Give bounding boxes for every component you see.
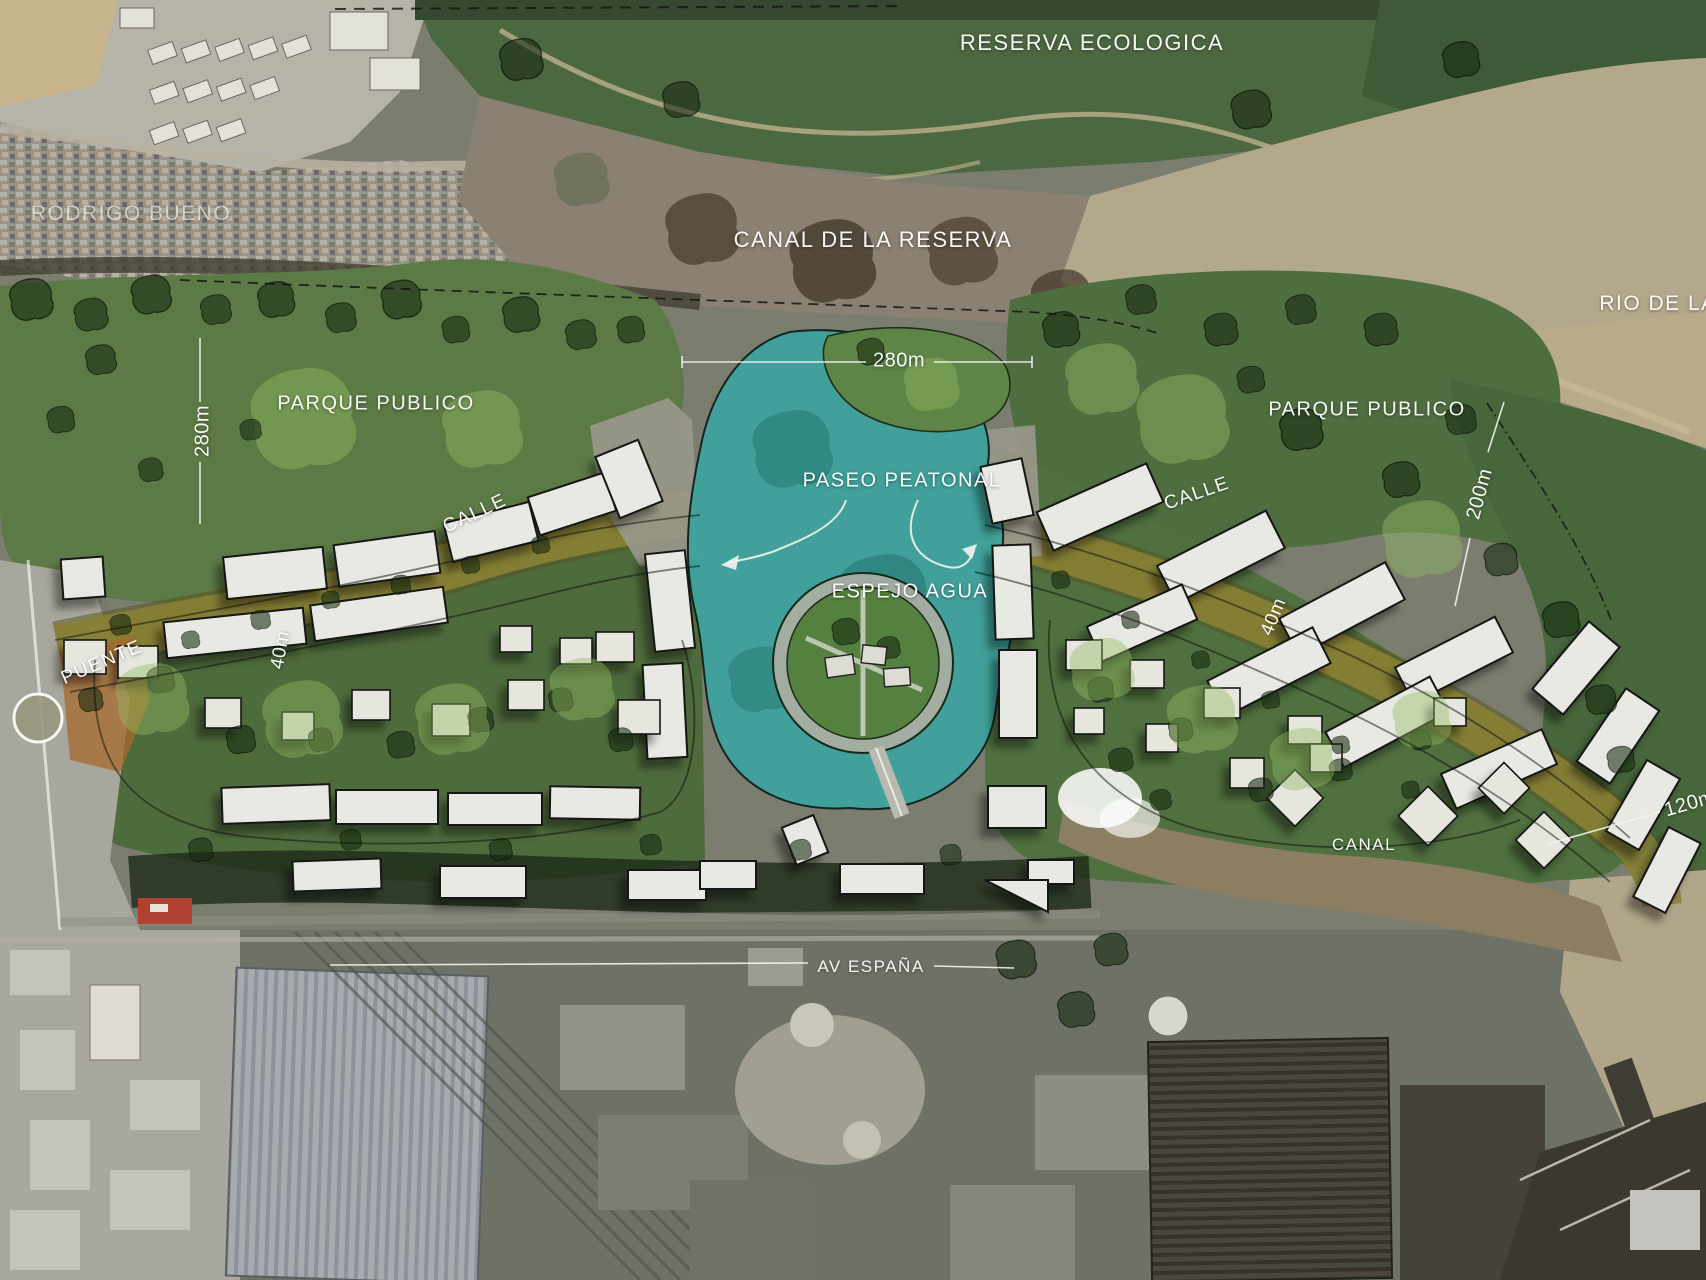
label-rodrigo-bueno: RODRIGO BUENO [31, 202, 231, 226]
site-plan-map: RESERVA ECOLOGICA RODRIGO BUENO CANAL DE… [0, 0, 1706, 1280]
label-parque-publico-left: PARQUE PUBLICO [277, 393, 474, 416]
label-reserva-ecologica: RESERVA ECOLOGICA [960, 30, 1224, 56]
industrial-area [0, 870, 1706, 1280]
label-canal-de-la-reserva: CANAL DE LA RESERVA [734, 227, 1013, 253]
label-paseo-peatonal: PASEO PEATONAL [803, 470, 1002, 493]
site-plan-svg [0, 0, 1706, 1280]
label-canal: CANAL [1332, 835, 1396, 855]
lake [688, 328, 1012, 816]
label-rio-de-la-plata: RIO DE LA [1599, 292, 1706, 316]
label-parque-publico-right: PARQUE PUBLICO [1268, 399, 1465, 422]
dim-280m-lake: 280m [873, 350, 925, 373]
label-espejo-agua: ESPEJO AGUA [832, 581, 989, 604]
dim-280m-left: 280m [192, 405, 215, 457]
label-av-espana: AV ESPAÑA [817, 957, 924, 977]
